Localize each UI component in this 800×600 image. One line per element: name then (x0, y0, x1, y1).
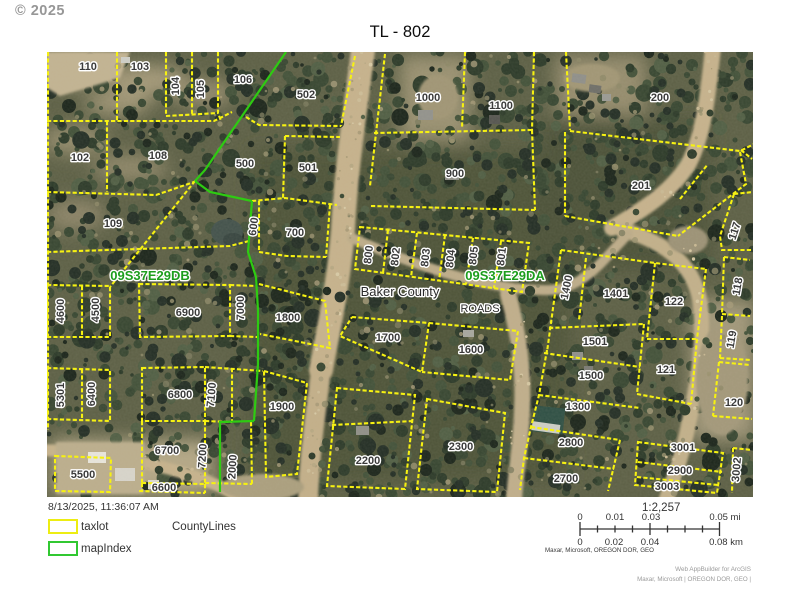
svg-text:109: 109 (104, 218, 122, 230)
svg-text:502: 502 (297, 89, 315, 101)
svg-text:200: 200 (651, 92, 669, 104)
svg-text:804: 804 (444, 248, 458, 268)
svg-text:1800: 1800 (276, 312, 300, 324)
svg-text:900: 900 (446, 168, 464, 180)
svg-text:105: 105 (195, 80, 207, 98)
svg-text:09S37E29DA: 09S37E29DA (465, 268, 545, 283)
svg-text:5301: 5301 (55, 383, 67, 407)
svg-text:104: 104 (170, 76, 182, 95)
svg-text:3001: 3001 (671, 442, 695, 454)
svg-text:800: 800 (362, 245, 376, 265)
svg-text:501: 501 (299, 162, 317, 174)
svg-text:803: 803 (419, 248, 433, 268)
svg-text:1401: 1401 (604, 288, 628, 300)
svg-text:122: 122 (665, 296, 683, 308)
svg-text:2000: 2000 (226, 454, 239, 479)
svg-text:2900: 2900 (668, 465, 692, 477)
svg-text:2200: 2200 (356, 455, 380, 467)
svg-text:4600: 4600 (55, 299, 67, 323)
svg-text:0.05 mi: 0.05 mi (709, 512, 740, 523)
svg-text:600: 600 (247, 217, 261, 237)
svg-text:7200: 7200 (196, 443, 209, 468)
svg-text:1700: 1700 (376, 332, 400, 344)
svg-text:1501: 1501 (583, 336, 607, 348)
svg-text:805: 805 (467, 246, 481, 266)
svg-text:4500: 4500 (90, 298, 102, 322)
svg-text:6900: 6900 (176, 307, 200, 319)
svg-text:6800: 6800 (168, 389, 192, 401)
svg-text:2800: 2800 (559, 437, 583, 449)
svg-text:801: 801 (495, 247, 509, 267)
svg-text:1300: 1300 (566, 401, 590, 413)
svg-text:6600: 6600 (152, 482, 176, 494)
svg-text:0.01: 0.01 (606, 512, 625, 523)
svg-text:0.08 km: 0.08 km (709, 537, 743, 548)
svg-text:201: 201 (632, 180, 650, 192)
svg-text:7000: 7000 (235, 296, 247, 320)
svg-text:1500: 1500 (579, 370, 603, 382)
svg-text:1000: 1000 (416, 92, 440, 104)
svg-text:120: 120 (725, 397, 743, 409)
svg-text:110: 110 (79, 61, 97, 73)
svg-text:802: 802 (389, 247, 403, 267)
svg-text:7100: 7100 (205, 382, 219, 407)
svg-text:09S37E29DB: 09S37E29DB (110, 268, 190, 283)
svg-text:1900: 1900 (270, 401, 294, 413)
svg-text:3002: 3002 (730, 457, 744, 482)
svg-text:0: 0 (577, 512, 582, 523)
svg-text:108: 108 (149, 150, 167, 162)
svg-text:Baker County: Baker County (361, 284, 440, 299)
svg-text:3003: 3003 (655, 481, 679, 493)
svg-text:700: 700 (286, 227, 304, 239)
svg-text:6400: 6400 (86, 382, 98, 406)
svg-text:121: 121 (657, 364, 675, 376)
svg-text:1600: 1600 (459, 344, 483, 356)
svg-text:106: 106 (234, 74, 252, 86)
svg-text:2700: 2700 (554, 473, 578, 485)
svg-text:0.03: 0.03 (642, 512, 661, 523)
svg-text:102: 102 (71, 152, 89, 164)
svg-text:5500: 5500 (71, 469, 95, 481)
svg-text:1100: 1100 (489, 100, 513, 112)
svg-text:2300: 2300 (449, 441, 473, 453)
svg-text:500: 500 (236, 158, 254, 170)
svg-text:6700: 6700 (155, 445, 179, 457)
svg-text:ROADS: ROADS (460, 303, 499, 315)
svg-text:103: 103 (131, 61, 149, 73)
